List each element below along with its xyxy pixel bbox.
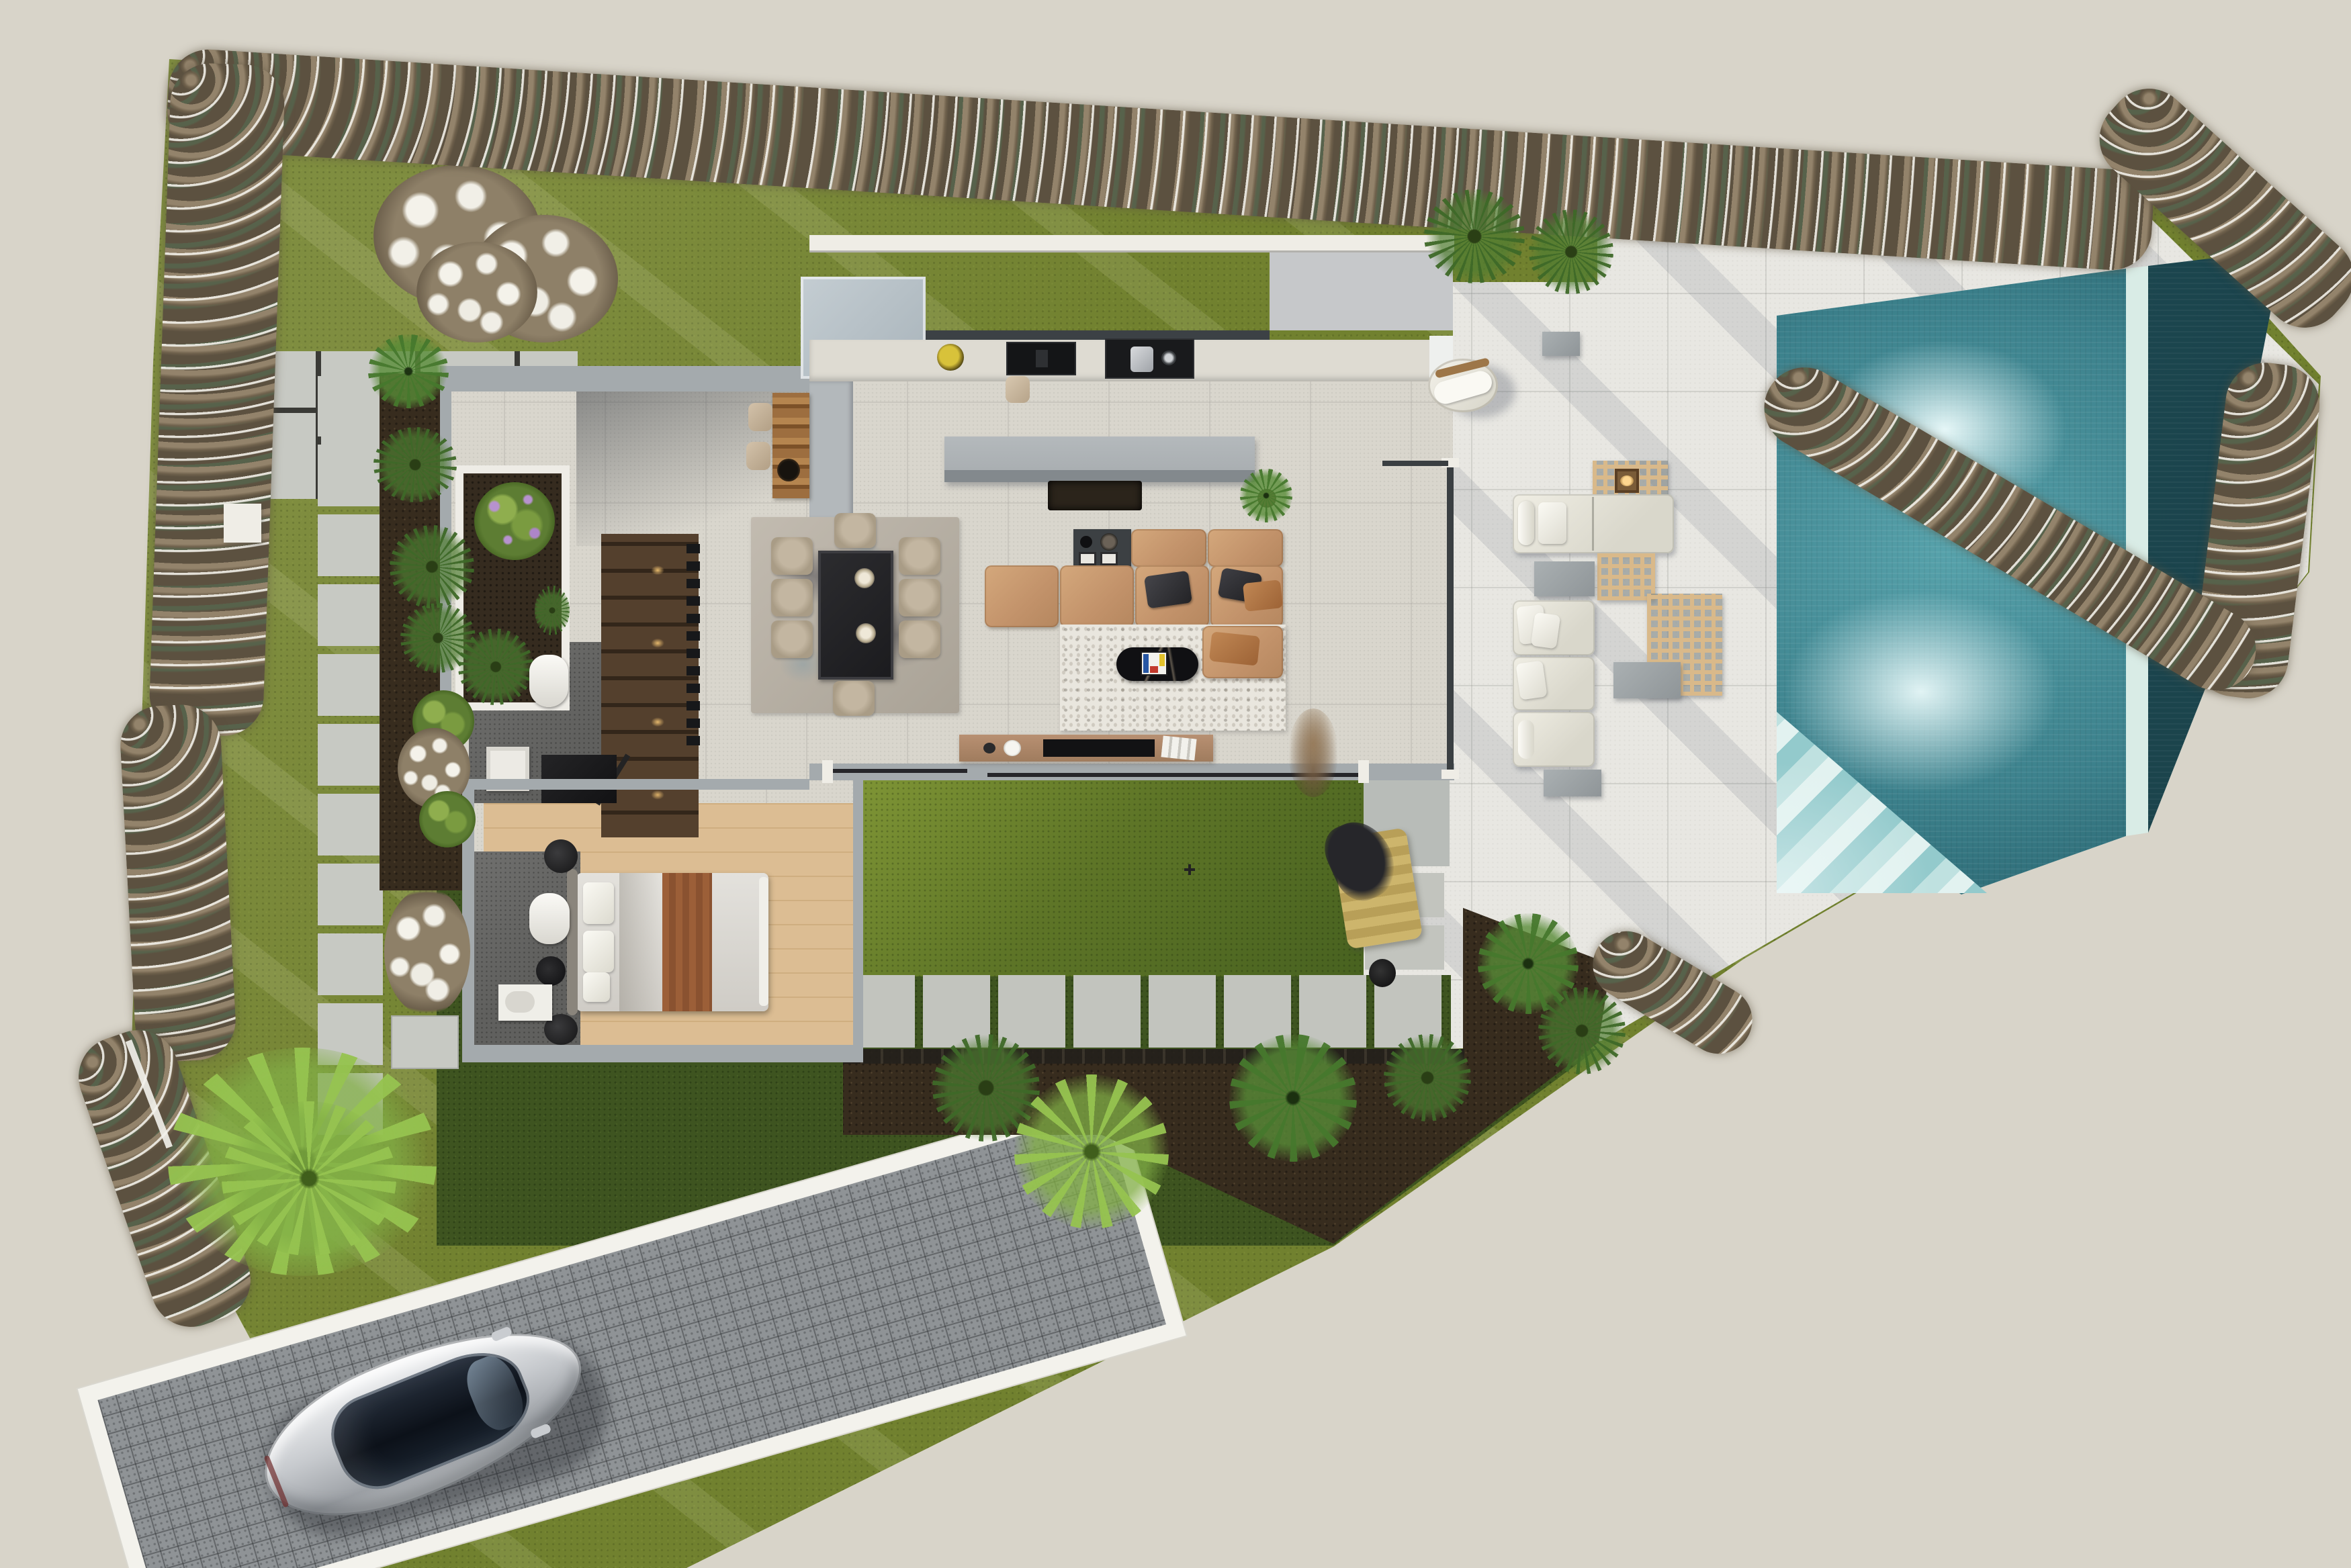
chaise-seam bbox=[1592, 497, 1594, 551]
framed-photo-2 bbox=[1100, 552, 1118, 565]
dining-chair-4 bbox=[899, 537, 940, 575]
bed-duvet-fold bbox=[619, 873, 660, 1011]
guest-wc-toilet bbox=[529, 655, 568, 707]
bed-bench bbox=[759, 877, 768, 1006]
chaise-cushion-rust bbox=[1209, 631, 1260, 665]
bar-sink-hole-2 bbox=[777, 459, 800, 481]
dining-chair-2 bbox=[771, 579, 813, 616]
tv-panel bbox=[1043, 739, 1155, 757]
bed-throw bbox=[662, 873, 712, 1011]
decor-cup bbox=[983, 743, 995, 753]
bed-pillow-1 bbox=[583, 882, 614, 924]
chaise-roll-pillow bbox=[1518, 501, 1534, 545]
patio-door-track-1 bbox=[833, 769, 967, 773]
floor-vase bbox=[1369, 959, 1396, 987]
dining-chair-3 bbox=[771, 620, 813, 658]
terrace-cycad-2 bbox=[1529, 210, 1613, 294]
utility-box bbox=[224, 504, 261, 543]
lounge-pillow-3 bbox=[1515, 660, 1547, 700]
ensuite-toilet bbox=[529, 893, 570, 944]
lounge-end-slab bbox=[1544, 770, 1601, 796]
lounge-module-2 bbox=[1513, 657, 1595, 710]
decor-vase bbox=[1100, 533, 1118, 551]
lattice-lantern bbox=[1615, 469, 1639, 493]
nightstand-1 bbox=[544, 839, 578, 873]
garden-path-elbow bbox=[391, 1015, 459, 1069]
monstera-leaves bbox=[1240, 469, 1292, 522]
bed bbox=[576, 873, 768, 1011]
cooktop-burner bbox=[1036, 350, 1048, 367]
flowering-tree-blob-3 bbox=[416, 242, 537, 342]
ensuite-vanity bbox=[498, 984, 552, 1021]
dining-chair-6 bbox=[899, 620, 940, 658]
potted-monstera bbox=[1240, 469, 1292, 522]
media-console bbox=[959, 735, 1213, 762]
pampas-arrangement bbox=[1288, 708, 1338, 797]
se-bed-cycad bbox=[1538, 987, 1626, 1074]
bed-brick-edge bbox=[843, 1049, 1464, 1064]
pendant-light-2 bbox=[856, 623, 876, 643]
decor-bowl-1 bbox=[1080, 536, 1092, 548]
entry-door-mat bbox=[1048, 481, 1142, 510]
hedge-left-upper bbox=[148, 62, 286, 737]
lounge-side-table-1 bbox=[1534, 561, 1595, 596]
sofa-cushion-rust-1 bbox=[1243, 580, 1283, 612]
sofa-back-cushion-1 bbox=[1131, 529, 1206, 567]
dining-chair-7 bbox=[834, 513, 876, 548]
garden-path bbox=[318, 376, 383, 1135]
site-plan-canvas bbox=[0, 0, 2351, 1568]
art-book-red-square bbox=[1150, 666, 1158, 673]
kitchen-sink bbox=[1105, 338, 1194, 379]
hedge-left-lower bbox=[118, 702, 238, 1063]
door-jamb-1 bbox=[822, 760, 833, 783]
dining-chair-5 bbox=[899, 579, 940, 616]
bar-counter bbox=[772, 393, 809, 498]
glass-east-wall bbox=[1447, 463, 1454, 779]
dining-chair-1 bbox=[771, 537, 813, 575]
bar-sink-hole-1 bbox=[779, 410, 801, 433]
wing-bottom-wall bbox=[462, 1045, 863, 1062]
bed-pillow-3 bbox=[583, 972, 610, 1002]
planter-fern bbox=[535, 586, 570, 635]
framed-photo-1 bbox=[1079, 552, 1096, 565]
glass-corner-north bbox=[1382, 461, 1448, 466]
sofa-module-1 bbox=[985, 565, 1059, 627]
lounge-module-3 bbox=[1513, 712, 1595, 767]
art-book-yellow-bar bbox=[1159, 654, 1165, 666]
bar-stool-1 bbox=[748, 403, 772, 431]
left-bed-cycad-1 bbox=[373, 427, 457, 502]
chaise-pillow bbox=[1538, 502, 1566, 544]
front-palm-overlap bbox=[222, 1101, 396, 1256]
island-stool bbox=[1006, 376, 1030, 403]
stair-balustrade-slats bbox=[686, 537, 700, 745]
sofa-side-table bbox=[1073, 529, 1131, 568]
vanity-sink bbox=[505, 991, 535, 1013]
door-jamb-2 bbox=[1358, 760, 1369, 783]
glass-jamb-bottom bbox=[1441, 770, 1459, 779]
dining-table bbox=[818, 551, 893, 680]
ensuite-stool bbox=[536, 956, 566, 986]
lantern-glow bbox=[1620, 475, 1634, 486]
bed-headboard bbox=[567, 869, 578, 1015]
planter-lavender-dots bbox=[481, 486, 548, 553]
sink-basin bbox=[1130, 347, 1153, 372]
fruit-bowl bbox=[937, 344, 964, 371]
path-palm bbox=[368, 334, 449, 408]
left-bed-shrub-2 bbox=[419, 791, 476, 847]
back-bed-cycad-2 bbox=[1384, 1034, 1471, 1121]
dining-chair-8 bbox=[833, 681, 875, 716]
lounge-side-table-2 bbox=[1613, 662, 1681, 698]
sofa-back-cushion-2 bbox=[1208, 529, 1283, 567]
pendant-light-1 bbox=[854, 568, 875, 588]
left-bed-flowers-2 bbox=[384, 888, 470, 1015]
round-lounge-chair bbox=[1428, 359, 1506, 414]
mat-feather-decor bbox=[1070, 486, 1107, 503]
art-book-blue-bar bbox=[1143, 654, 1149, 673]
wing-top-wall bbox=[462, 779, 809, 790]
kitchen-island bbox=[944, 436, 1255, 482]
terrace-cube-table bbox=[1542, 332, 1580, 356]
cooktop bbox=[1006, 342, 1076, 375]
sofa-cushion-charcoal-1 bbox=[1144, 571, 1192, 609]
court-sprinkler-mark bbox=[1184, 864, 1196, 876]
lounge-chaise-1 bbox=[1513, 494, 1674, 553]
wing-right-wall bbox=[853, 779, 863, 1062]
sink-faucet bbox=[1161, 351, 1176, 365]
sofa-module-2 bbox=[1060, 565, 1134, 627]
decor-plate bbox=[1004, 740, 1021, 756]
back-bed-palm-big bbox=[1014, 1074, 1169, 1229]
inner-court-lawn bbox=[863, 780, 1364, 976]
terrace-cycad-1 bbox=[1424, 189, 1525, 283]
book-stack bbox=[1161, 735, 1196, 760]
left-bed-cycad-2 bbox=[390, 525, 474, 608]
stair-right-landing bbox=[1270, 252, 1453, 330]
left-bed-cycad-3 bbox=[400, 603, 476, 673]
lounge-pillow-2 bbox=[1531, 612, 1561, 649]
lounge-roll-pillow bbox=[1518, 720, 1534, 759]
main-roof-band bbox=[809, 235, 1454, 252]
lounge-module-1 bbox=[1513, 600, 1595, 655]
bar-stool-2 bbox=[746, 442, 770, 470]
garden-slab-row bbox=[848, 975, 1449, 1048]
entry-top-wall bbox=[440, 366, 809, 391]
art-book bbox=[1142, 653, 1166, 674]
back-bed-palm-2 bbox=[1229, 1034, 1357, 1162]
bed-pillow-2 bbox=[583, 931, 614, 972]
